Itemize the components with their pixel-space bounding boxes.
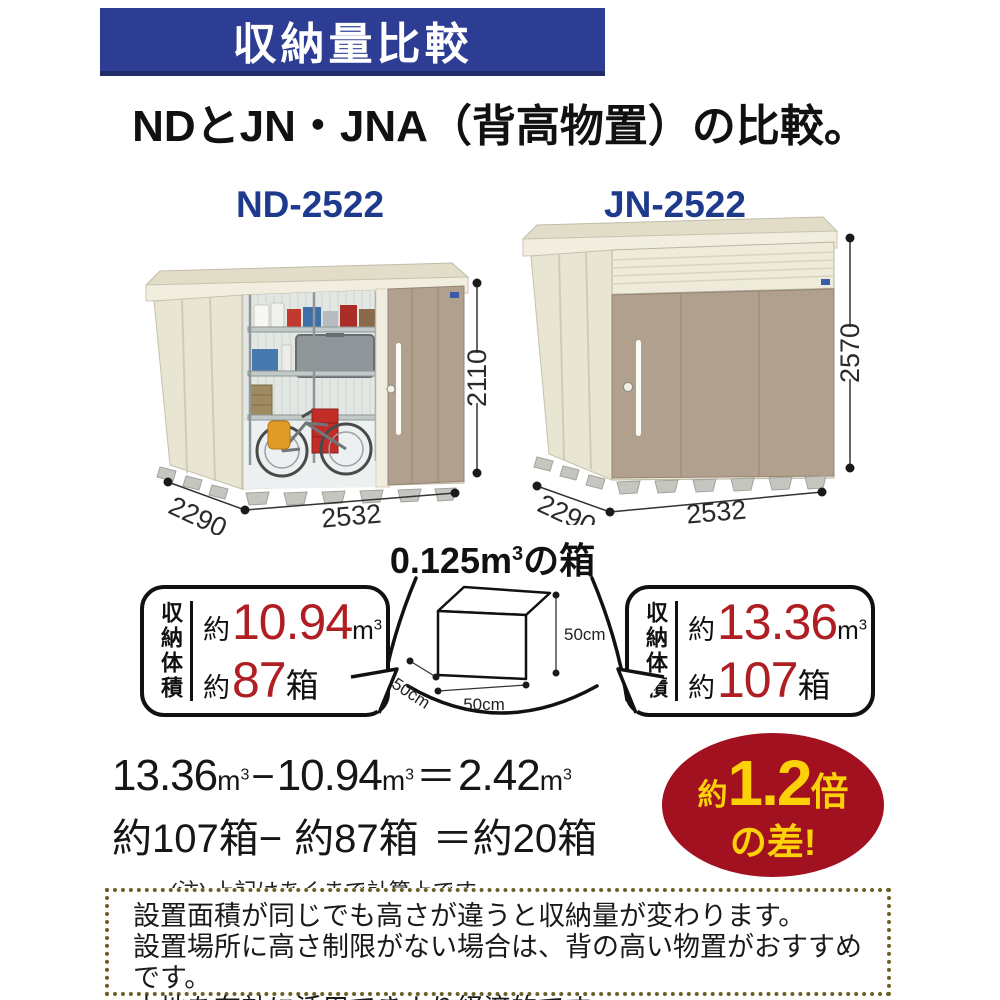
model-label-nd: ND-2522 bbox=[130, 184, 490, 226]
nd-left-wall bbox=[154, 295, 242, 489]
jn-door bbox=[612, 289, 834, 478]
cube-height-label: 50cm bbox=[564, 625, 606, 644]
count-unit: 箱 bbox=[286, 659, 319, 707]
info-line: 土地を有効に活用できより経済的です。 bbox=[133, 994, 877, 1000]
eq-v2: 10.94 bbox=[277, 751, 382, 801]
nd-width-label: 2532 bbox=[320, 498, 382, 533]
callout-tail bbox=[612, 667, 668, 717]
nd-shed-illustration: 2110 2290 2532 bbox=[130, 235, 500, 535]
door-handle bbox=[636, 340, 641, 436]
brand-tag bbox=[821, 279, 830, 285]
unit-m: m bbox=[540, 765, 563, 796]
page: 収納量比較 NDとJN・JNA（背高物置）の比較。 ND-2522 JN-252… bbox=[0, 0, 1000, 1000]
section-banner: 収納量比較 bbox=[100, 8, 605, 76]
approx-prefix: 約 bbox=[688, 666, 715, 705]
callout-tail bbox=[347, 667, 403, 717]
jn-count-row: 約 107 箱 bbox=[688, 651, 871, 709]
nd-door bbox=[387, 286, 464, 485]
jn-height-label: 2570 bbox=[835, 323, 865, 383]
volume-equation: 13.36 m3 − 10.94 m3 ＝ 2.42 m3 bbox=[112, 744, 672, 802]
jn-shed-illustration: 2570 2290 2532 bbox=[505, 205, 875, 525]
page-title: NDとJN・JNA（背高物置）の比較。 bbox=[0, 90, 1000, 154]
info-line: 設置面積が同じでも高さが違うと収納量が変わります。 bbox=[133, 901, 877, 932]
badge-prefix: 約 bbox=[698, 770, 728, 814]
difference-badge: 約 1.2 倍 の差! bbox=[662, 733, 884, 877]
approx-prefix: 約 bbox=[203, 608, 230, 647]
jn-dimension-width: 2532 bbox=[606, 488, 827, 526]
jn-volume-row: 約 13.36 m3 bbox=[688, 593, 871, 651]
calculation-block: 13.36 m3 − 10.94 m3 ＝ 2.42 m3 約107箱 − 約8… bbox=[112, 744, 672, 906]
equals-sign: ＝ bbox=[433, 806, 473, 864]
unit-sup: 3 bbox=[240, 767, 249, 784]
unit-sup: 3 bbox=[563, 767, 572, 784]
count-unit: 箱 bbox=[797, 659, 830, 707]
unit-m: m bbox=[837, 615, 859, 645]
unit-sup: 3 bbox=[374, 616, 382, 633]
cube-title-unit-sup: 3 bbox=[512, 543, 523, 565]
cube-width-label: 50cm bbox=[463, 695, 505, 714]
badge-value: 1.2 bbox=[728, 746, 811, 820]
minus-sign: − bbox=[251, 755, 274, 800]
nd-dimension-width: 2532 bbox=[241, 489, 460, 534]
jn-count-value: 107 bbox=[717, 651, 797, 709]
badge-line2: の差! bbox=[730, 812, 816, 866]
badge-line1: 約 1.2 倍 bbox=[698, 746, 849, 820]
nd-interior bbox=[242, 289, 382, 491]
eq-v3: 2.42 bbox=[458, 751, 540, 801]
equals-sign: ＝ bbox=[416, 744, 456, 802]
nd-front bbox=[242, 286, 464, 491]
jn-volume-callout: 収納体積 約 13.36 m3 約 107 箱 bbox=[625, 585, 875, 717]
cube-dim-width: 50cm bbox=[435, 682, 530, 715]
eq-v1: 13.36 bbox=[112, 751, 217, 801]
nd-height-label: 2110 bbox=[462, 349, 492, 407]
box-count-equation: 約107箱 − 約87箱 ＝ 約20箱 bbox=[112, 806, 672, 864]
badge-suffix: 倍 bbox=[810, 761, 848, 816]
info-line: 設置場所に高さ制限がない場合は、背の高い物置がおすすめです。 bbox=[133, 932, 877, 994]
info-box: 設置面積が同じでも高さが違うと収納量が変わります。 設置場所に高さ制限がない場合… bbox=[105, 888, 891, 996]
nd-volume-label: 収納体積 bbox=[144, 589, 190, 713]
eq-c2: 約87箱 bbox=[294, 806, 419, 864]
jn-dimension-height: 2570 bbox=[835, 234, 865, 473]
unit-m: m bbox=[382, 765, 405, 796]
cube bbox=[438, 587, 550, 679]
jn-front bbox=[612, 242, 834, 480]
door-lock bbox=[624, 383, 633, 392]
unit-sup: 3 bbox=[405, 767, 414, 784]
door-lock bbox=[387, 385, 395, 393]
unit-sup: 3 bbox=[859, 616, 867, 633]
nd-volume-value: 10.94 bbox=[232, 593, 352, 651]
eq-c1: 約107箱 bbox=[112, 806, 259, 864]
cube-dim-height: 50cm bbox=[553, 592, 606, 677]
shelf-items-low bbox=[250, 385, 272, 417]
jn-left-wall bbox=[531, 250, 612, 480]
nd-volume-callout: 収納体積 約 10.94 m3 約 87 箱 bbox=[140, 585, 390, 717]
brand-tag bbox=[450, 292, 459, 298]
eq-c3: 約20箱 bbox=[473, 806, 598, 864]
jn-width-label: 2532 bbox=[685, 494, 747, 525]
door-handle bbox=[396, 343, 401, 435]
unit-m: m bbox=[217, 765, 240, 796]
jn-depth-label: 2290 bbox=[533, 489, 600, 525]
banner-text: 収納量比較 bbox=[233, 8, 473, 72]
nd-dimension-height: 2110 bbox=[462, 279, 492, 478]
nd-count-value: 87 bbox=[232, 651, 286, 709]
unit-m: m bbox=[352, 615, 374, 645]
approx-prefix: 約 bbox=[203, 666, 230, 705]
jn-volume-value: 13.36 bbox=[717, 593, 837, 651]
nd-volume-row: 約 10.94 m3 bbox=[203, 593, 386, 651]
minus-sign: − bbox=[259, 817, 282, 862]
approx-prefix: 約 bbox=[688, 608, 715, 647]
